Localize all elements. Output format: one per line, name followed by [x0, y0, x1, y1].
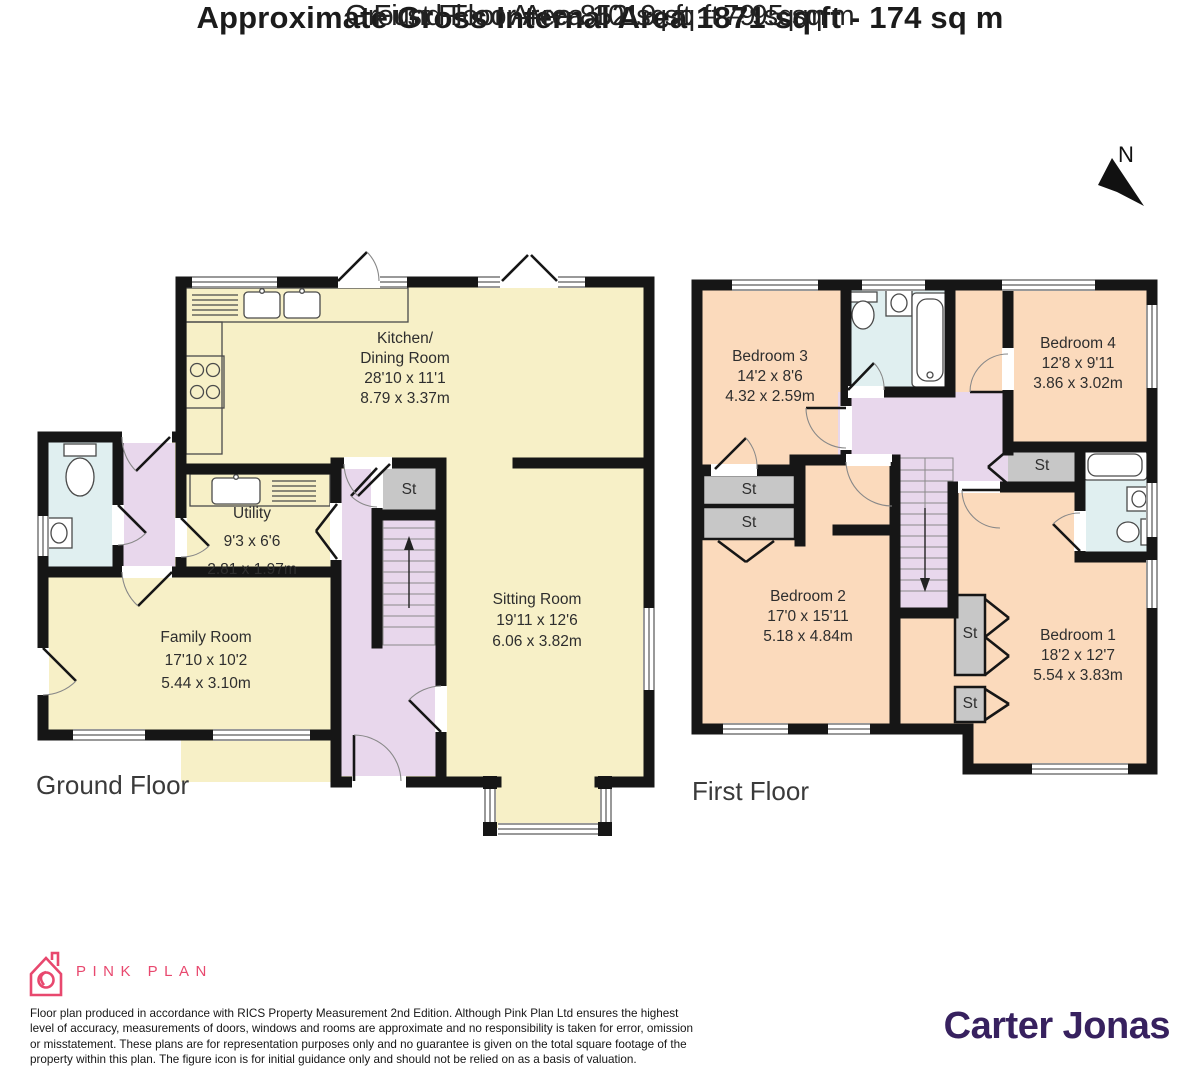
wc-toilet-icon — [64, 444, 96, 456]
room-label-family-room: Family Room 17'10 x 10'2 5.44 x 3.10m — [160, 626, 251, 695]
room-label-kitchen-dining: Kitchen/ Dining Room 28'10 x 11'1 8.79 x… — [360, 329, 450, 409]
first-floor-label: First Floor — [692, 776, 809, 807]
storage-label-st-first-low-1: St — [963, 625, 978, 643]
disclaimer-line: Floor plan produced in accordance with R… — [30, 1006, 693, 1021]
storage-label-st-ground: St — [402, 481, 417, 499]
room-label-bedroom-2: Bedroom 2 17'0 x 15'11 5.18 x 4.84m — [763, 587, 853, 647]
floorplan-page: Approximate Gross Internal Area 1871 sq … — [0, 0, 1200, 1087]
storage-label-st-first-low-2: St — [963, 695, 978, 713]
room-label-bedroom-4: Bedroom 4 12'8 x 9'11 3.86 x 3.02m — [1033, 334, 1123, 394]
floor-plans-drawing — [0, 0, 1200, 1087]
kitchen-sink-icon — [244, 292, 280, 318]
storage-label-st-first-left-1: St — [742, 481, 757, 499]
disclaimer: Floor plan produced in accordance with R… — [30, 1006, 693, 1068]
ground-floor-label: Ground Floor — [36, 770, 189, 801]
disclaimer-line: property within this plan. The figure ic… — [30, 1052, 693, 1067]
agent-logo: Carter Jonas — [944, 1005, 1170, 1048]
disclaimer-line: or misstatement. These plans are for rep… — [30, 1037, 693, 1052]
room-label-bedroom-1: Bedroom 1 18'2 x 12'7 5.54 x 3.83m — [1033, 626, 1123, 686]
disclaimer-line: level of accuracy, measurements of doors… — [30, 1021, 693, 1036]
kitchen-sink2-icon — [284, 292, 320, 318]
pink-plan-logo-icon — [31, 953, 61, 995]
room-label-sitting-room: Sitting Room 19'11 x 12'6 6.06 x 3.82m — [492, 589, 582, 652]
room-label-bedroom-3: Bedroom 3 14'2 x 8'6 4.32 x 2.59m — [725, 347, 815, 407]
north-arrow-icon — [1098, 158, 1144, 206]
storage-label-st-first-middle: St — [1035, 457, 1050, 475]
storage-label-st-first-left-2: St — [742, 514, 757, 532]
room-label-utility: Utility 9'3 x 6'6 2.81 x 1.97m — [207, 500, 297, 584]
pink-plan-brand: PINK PLAN — [76, 963, 213, 980]
